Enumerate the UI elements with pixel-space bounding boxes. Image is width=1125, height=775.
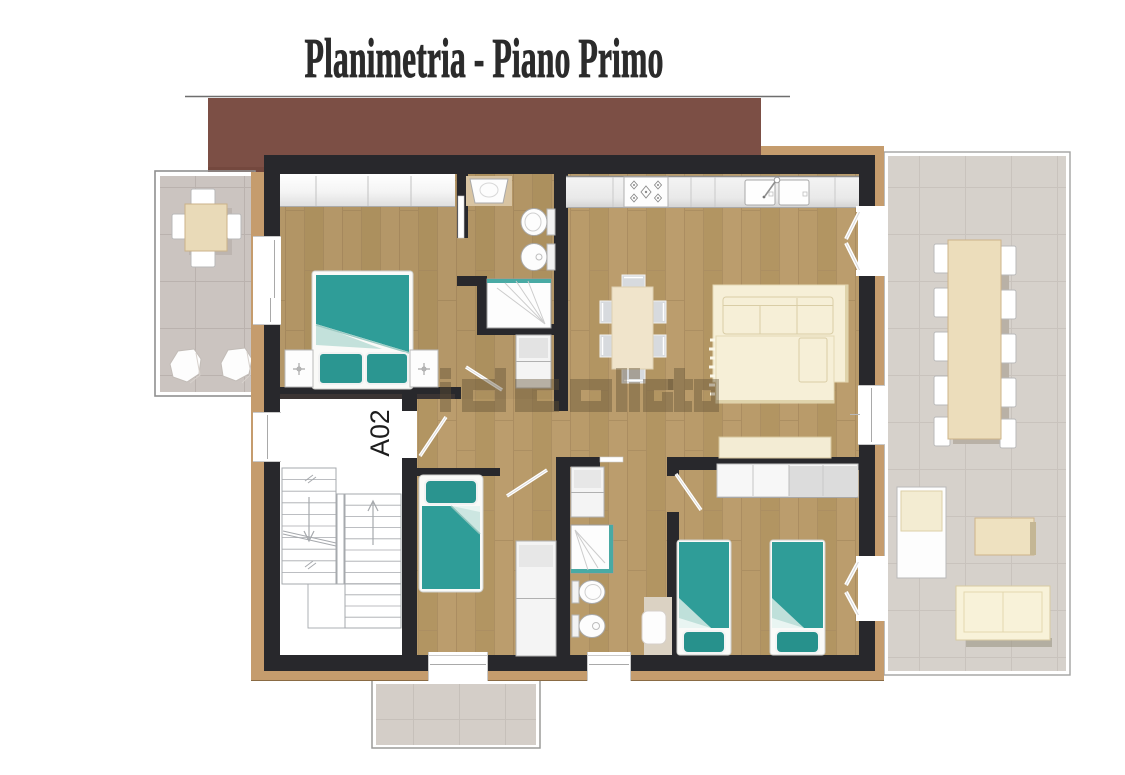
svg-text:Planimetria - Piano Primo: Planimetria - Piano Primo — [305, 27, 664, 90]
svg-text:A02: A02 — [365, 409, 395, 456]
